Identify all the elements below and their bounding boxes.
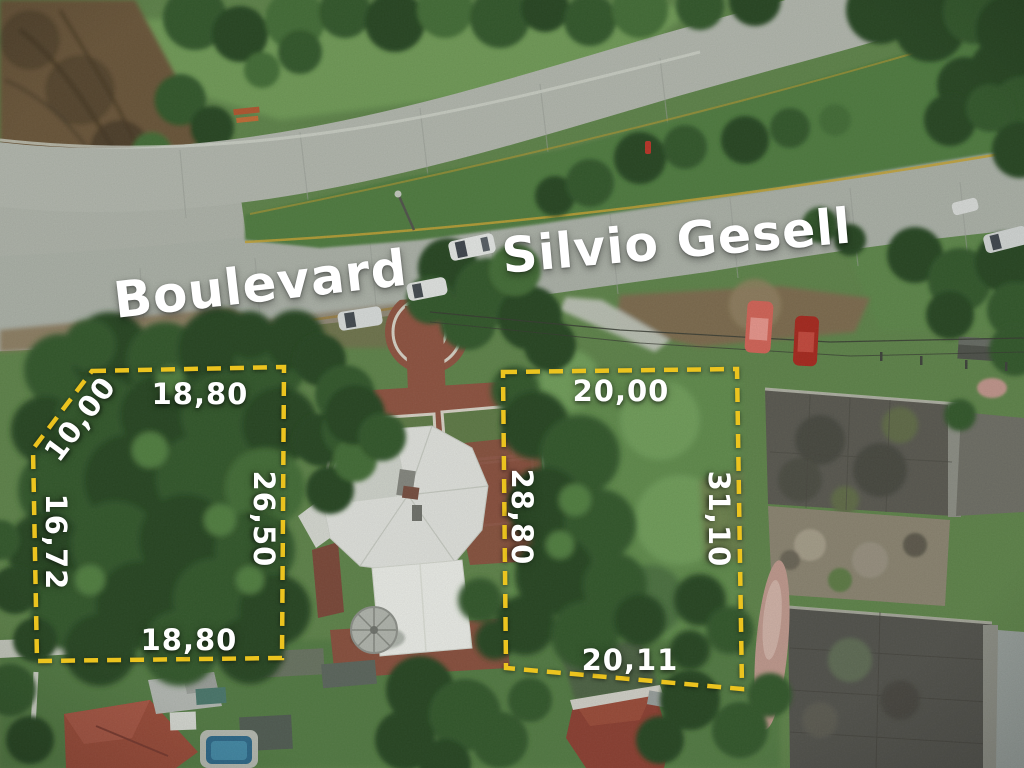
aerial-photo: Boulevard Silvio Gesell 18,80 10,00 16,7…: [0, 0, 1024, 768]
aerial-scene: [0, 0, 1024, 768]
vignette: [0, 0, 1024, 768]
